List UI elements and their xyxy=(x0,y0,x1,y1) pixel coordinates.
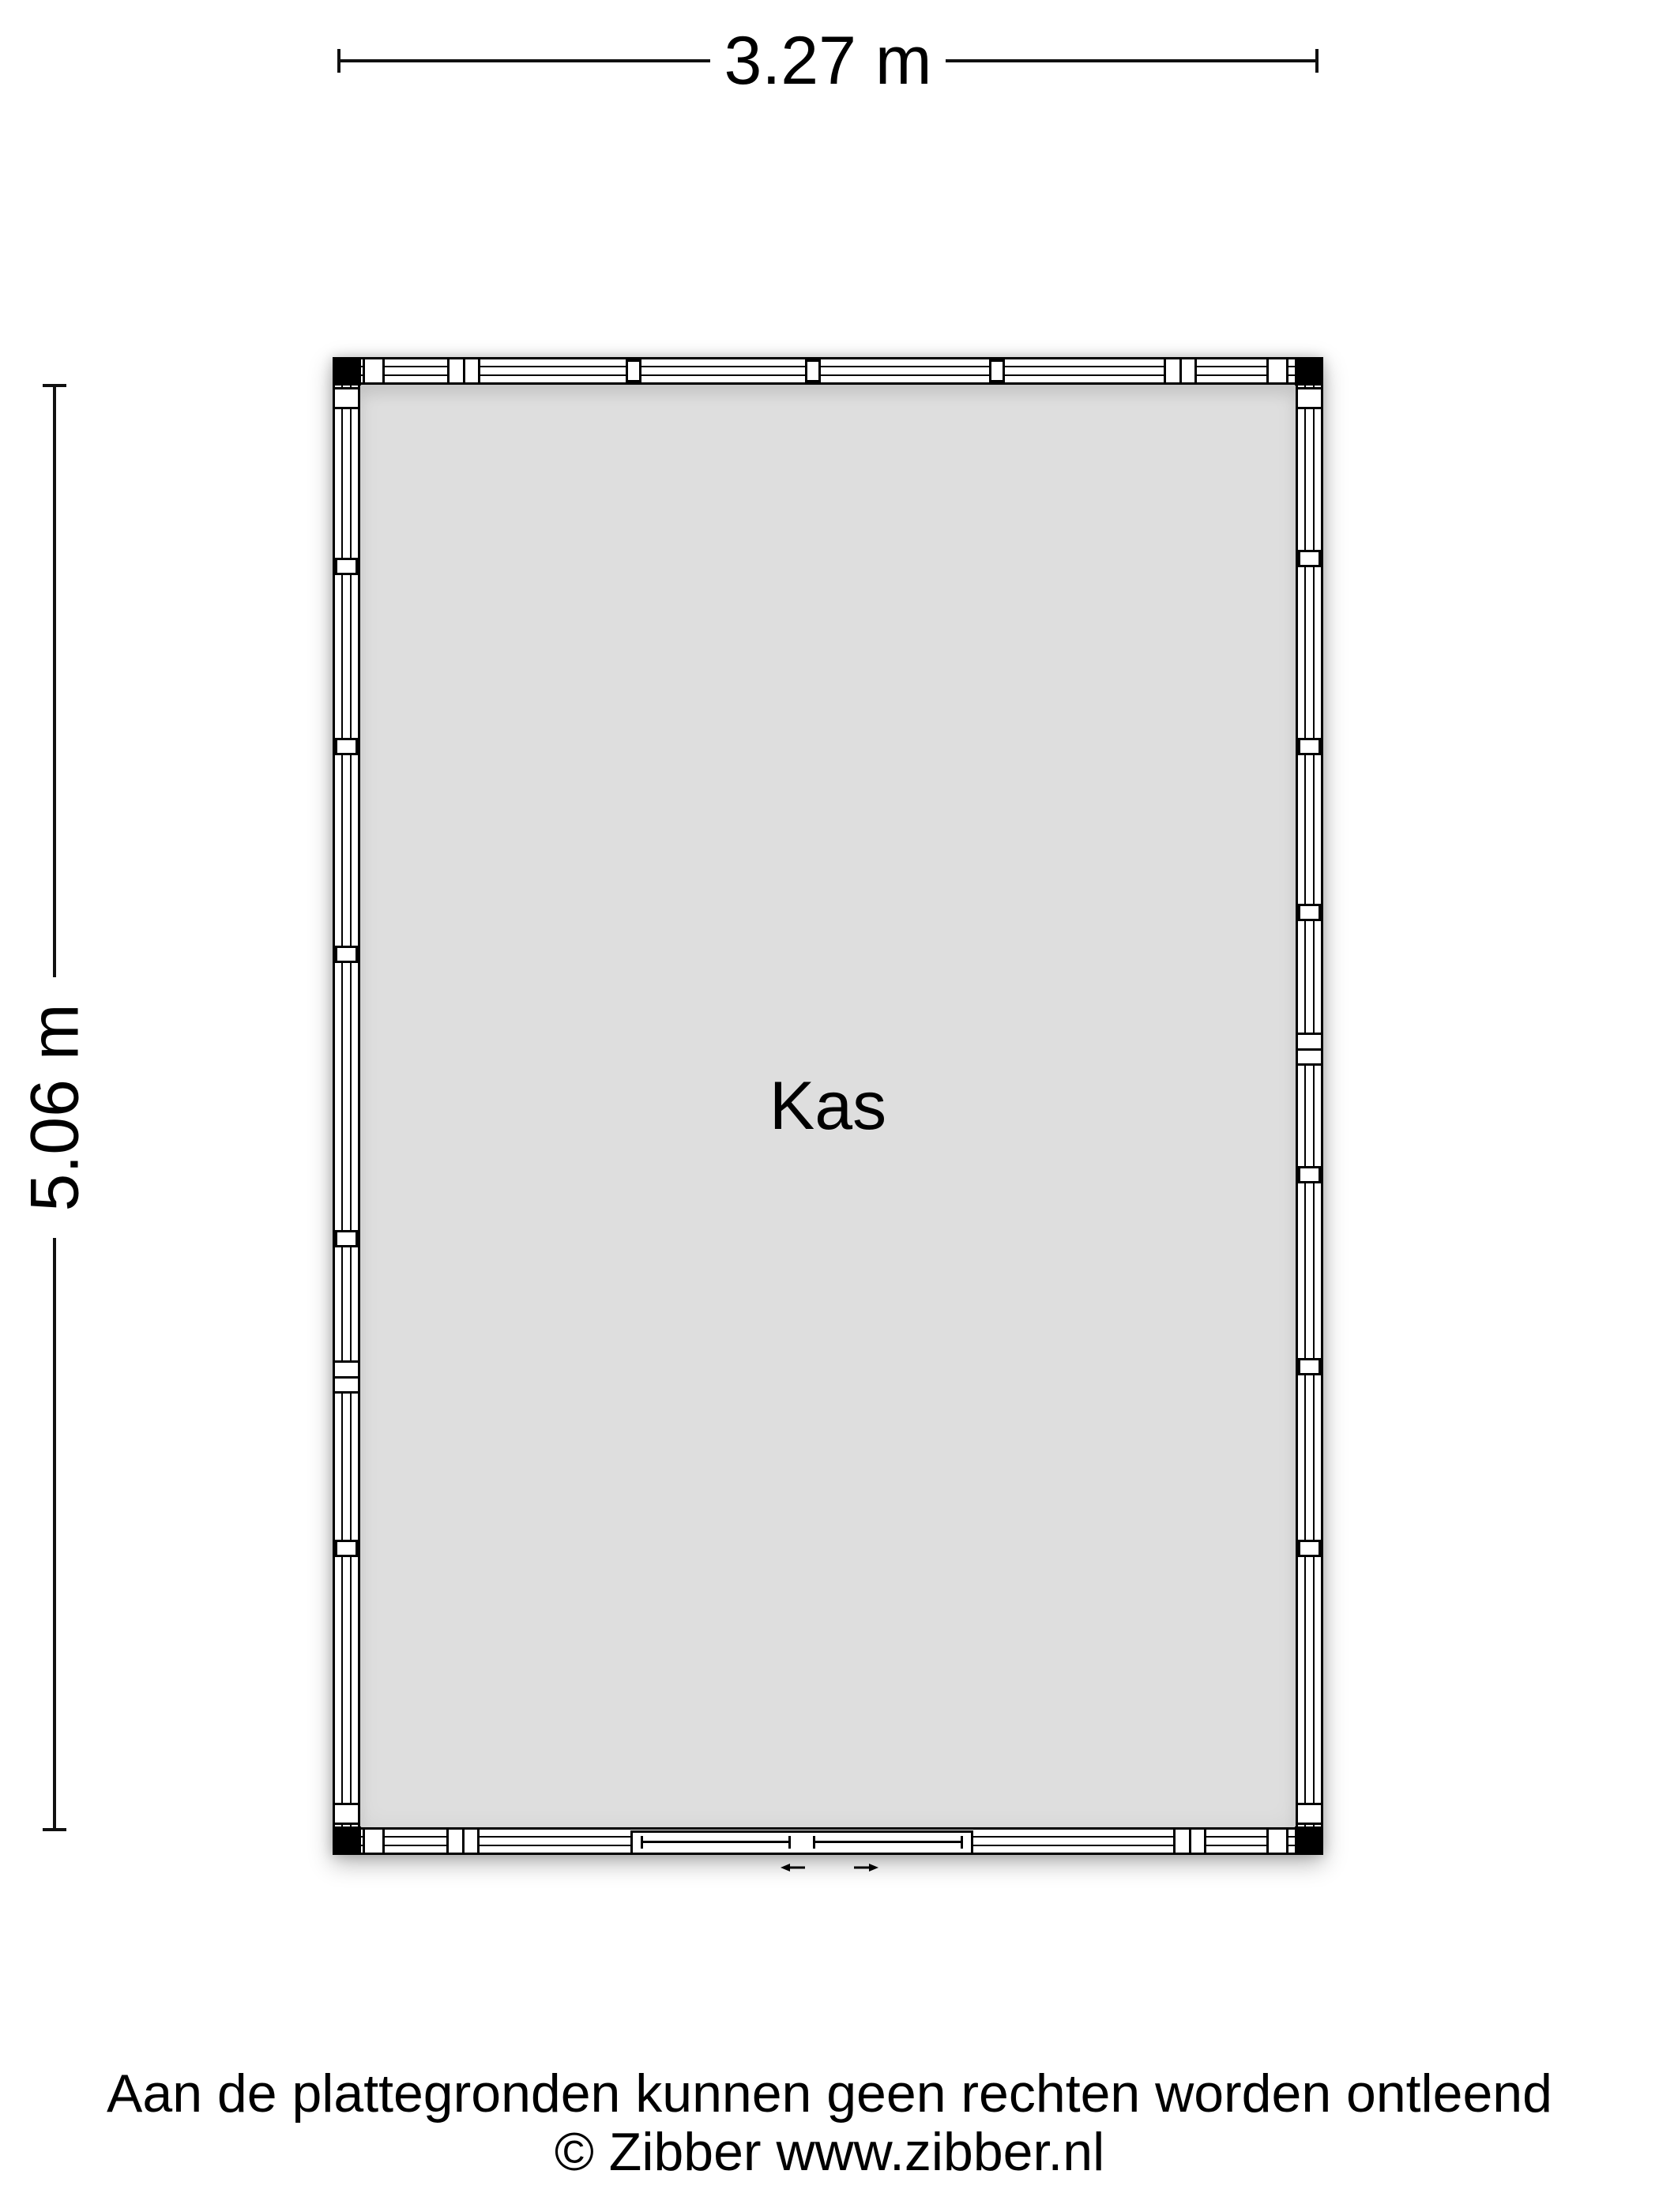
slide-direction-right-icon xyxy=(853,1861,878,1874)
wall-post xyxy=(1298,1540,1321,1557)
corner-post-top-left xyxy=(333,357,361,386)
floor-plan: 3.27 m 5.06 m Kas xyxy=(0,0,1659,2212)
wall-post xyxy=(333,387,360,409)
dimension-line-segment xyxy=(53,1238,56,1828)
wall-post xyxy=(446,1827,480,1855)
wall-post xyxy=(335,558,358,575)
wall-post xyxy=(335,738,358,755)
slide-direction-left-icon xyxy=(781,1861,806,1874)
wall-post xyxy=(363,357,385,385)
dimension-tick-bottom xyxy=(43,1828,66,1831)
wall-post xyxy=(1173,1827,1206,1855)
corner-post-bottom-left xyxy=(333,1826,361,1855)
wall-post xyxy=(1298,1358,1321,1375)
wall-right xyxy=(1296,386,1323,1826)
corner-post-top-right xyxy=(1295,357,1323,386)
wall-post xyxy=(1298,738,1321,755)
wall-top xyxy=(361,357,1295,385)
wall-post xyxy=(335,1540,358,1557)
footer-copyright: © Zibber www.zibber.nl xyxy=(0,2122,1659,2182)
dimension-line-segment xyxy=(946,59,1315,62)
dimension-top: 3.27 m xyxy=(337,45,1319,77)
wall-post xyxy=(626,359,641,382)
dimension-tick-right xyxy=(1315,49,1319,73)
dimension-top-label: 3.27 m xyxy=(710,27,946,95)
wall-post xyxy=(333,1803,360,1825)
wall-post xyxy=(1296,1033,1323,1066)
wall-post xyxy=(1266,357,1288,385)
wall-post xyxy=(363,1827,385,1855)
wall-post xyxy=(335,1230,358,1247)
wall-post xyxy=(1296,1803,1323,1825)
wall-post xyxy=(1266,1827,1288,1855)
corner-post-bottom-right xyxy=(1295,1826,1323,1855)
wall-post xyxy=(989,359,1005,382)
wall-post xyxy=(335,946,358,963)
building-outline: Kas xyxy=(333,357,1323,1855)
wall-post xyxy=(805,359,821,382)
wall-post xyxy=(1298,1166,1321,1183)
wall-bottom xyxy=(361,1827,1295,1855)
footer-disclaimer: Aan de plattegronden kunnen geen rechten… xyxy=(0,2063,1659,2124)
room-floor: Kas xyxy=(360,385,1296,1827)
door-panel-right xyxy=(813,1836,963,1849)
wall-left xyxy=(333,386,360,1826)
wall-post xyxy=(447,357,480,385)
wall-post xyxy=(1298,550,1321,567)
wall-post xyxy=(1164,357,1197,385)
sliding-door xyxy=(630,1830,973,1855)
door-panel-left xyxy=(641,1836,791,1849)
dimension-left-label-wrap: 5.06 m xyxy=(18,977,91,1238)
wall-post xyxy=(1296,387,1323,409)
dimension-left: 5.06 m xyxy=(18,384,91,1831)
dimension-line-segment xyxy=(53,387,56,977)
dimension-left-label: 5.06 m xyxy=(21,1004,88,1212)
dimension-line-segment xyxy=(340,59,710,62)
wall-post xyxy=(1298,904,1321,921)
wall-post xyxy=(333,1360,360,1394)
room-label: Kas xyxy=(769,1067,886,1145)
